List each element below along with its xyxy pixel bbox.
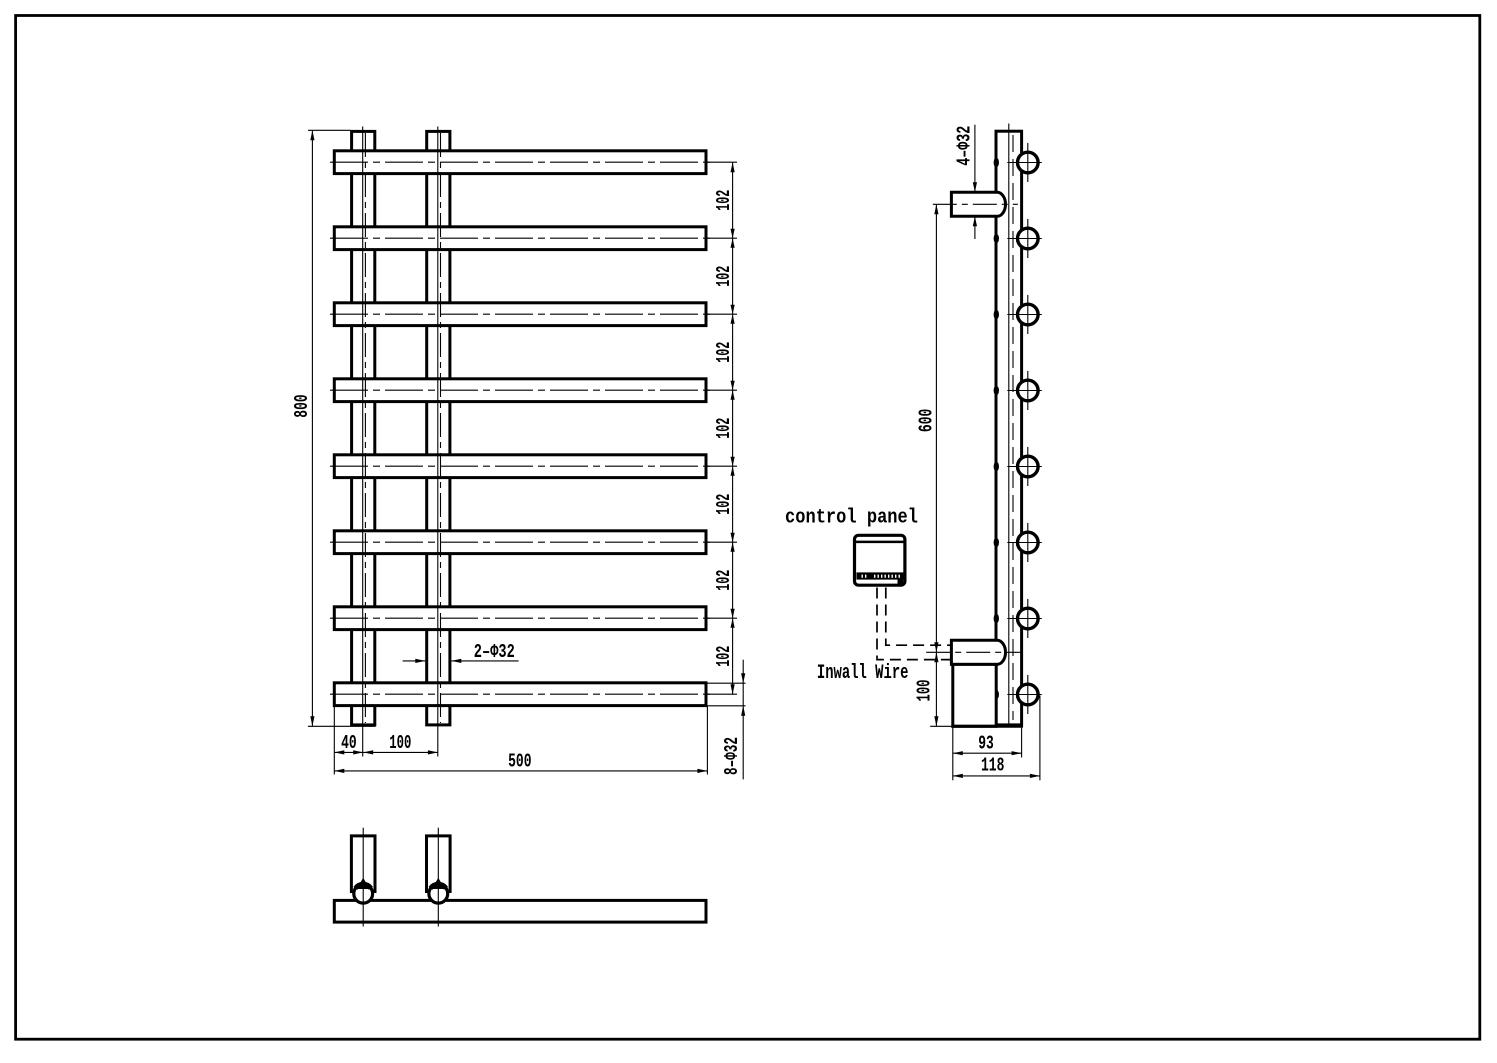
svg-text:4–Φ32: 4–Φ32 bbox=[953, 126, 975, 166]
svg-text:control panel: control panel bbox=[785, 507, 918, 530]
svg-text:500: 500 bbox=[508, 751, 531, 773]
svg-text:118: 118 bbox=[981, 754, 1004, 776]
svg-text:600: 600 bbox=[915, 409, 937, 432]
svg-text:93: 93 bbox=[978, 733, 994, 755]
svg-text:102: 102 bbox=[713, 494, 735, 515]
svg-text:40: 40 bbox=[341, 732, 357, 754]
svg-text:100: 100 bbox=[914, 680, 936, 702]
svg-text:102: 102 bbox=[713, 266, 735, 287]
svg-text:102: 102 bbox=[713, 342, 735, 363]
svg-text:102: 102 bbox=[713, 570, 735, 591]
svg-text:800: 800 bbox=[291, 394, 313, 417]
svg-text:8–Φ32: 8–Φ32 bbox=[721, 737, 743, 775]
svg-text:100: 100 bbox=[389, 732, 411, 754]
svg-text:102: 102 bbox=[713, 418, 735, 439]
svg-text:Inwall Wire: Inwall Wire bbox=[817, 662, 909, 685]
svg-text:2–Φ32: 2–Φ32 bbox=[474, 641, 515, 663]
svg-text:102: 102 bbox=[713, 190, 735, 211]
svg-text:102: 102 bbox=[713, 646, 735, 667]
